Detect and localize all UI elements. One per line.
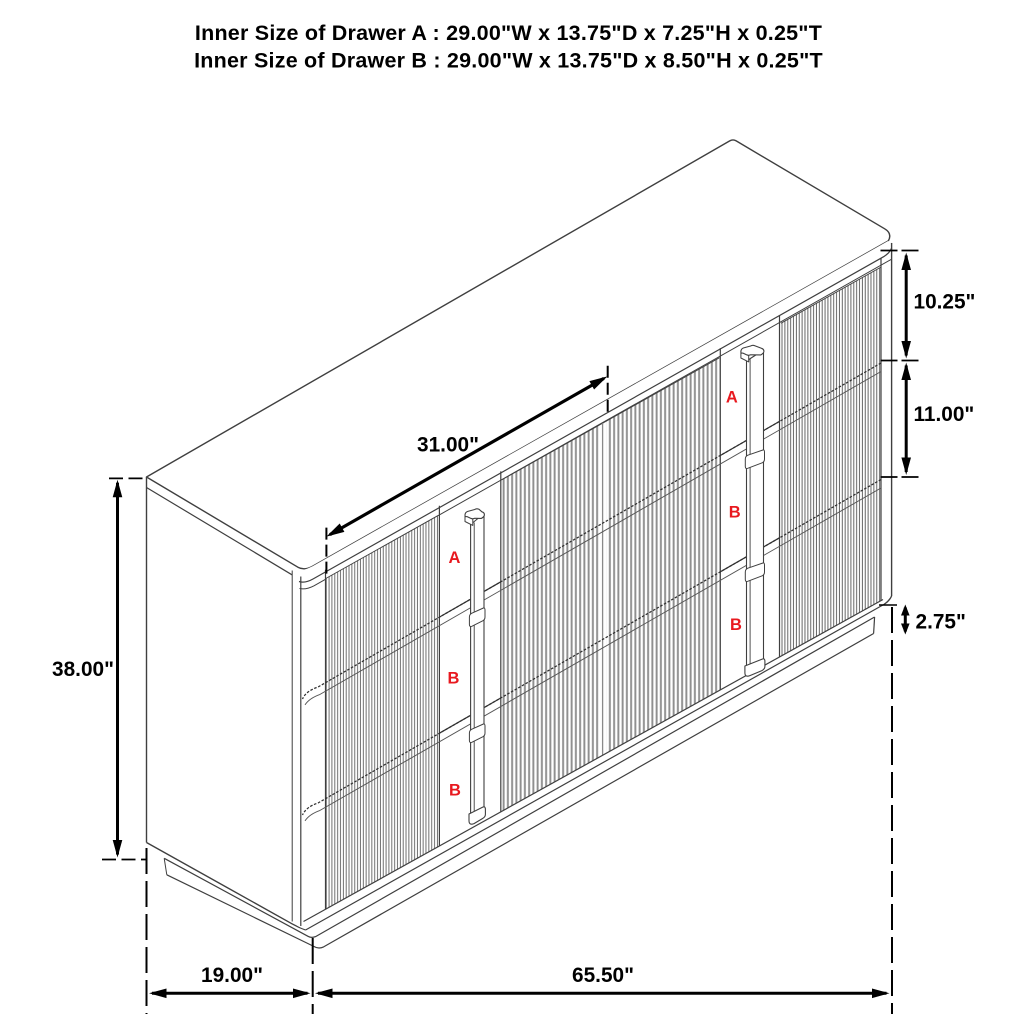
svg-text:38.00": 38.00" — [52, 658, 114, 681]
svg-text:Inner Size of Drawer B : 29.00: Inner Size of Drawer B : 29.00"W x 13.75… — [194, 49, 823, 73]
svg-text:B: B — [730, 616, 742, 634]
svg-text:2.75": 2.75" — [916, 611, 966, 634]
svg-text:11.00": 11.00" — [914, 403, 975, 426]
svg-text:B: B — [729, 504, 741, 522]
svg-text:31.00": 31.00" — [417, 434, 479, 457]
svg-text:19.00": 19.00" — [201, 964, 263, 987]
svg-text:Inner Size of Drawer A : 29.00: Inner Size of Drawer A : 29.00"W x 13.75… — [195, 21, 822, 45]
svg-text:B: B — [449, 782, 461, 800]
svg-text:A: A — [726, 389, 738, 407]
svg-text:B: B — [448, 670, 460, 688]
svg-text:65.50": 65.50" — [572, 964, 634, 987]
svg-text:A: A — [449, 549, 461, 567]
svg-text:10.25": 10.25" — [914, 291, 976, 314]
